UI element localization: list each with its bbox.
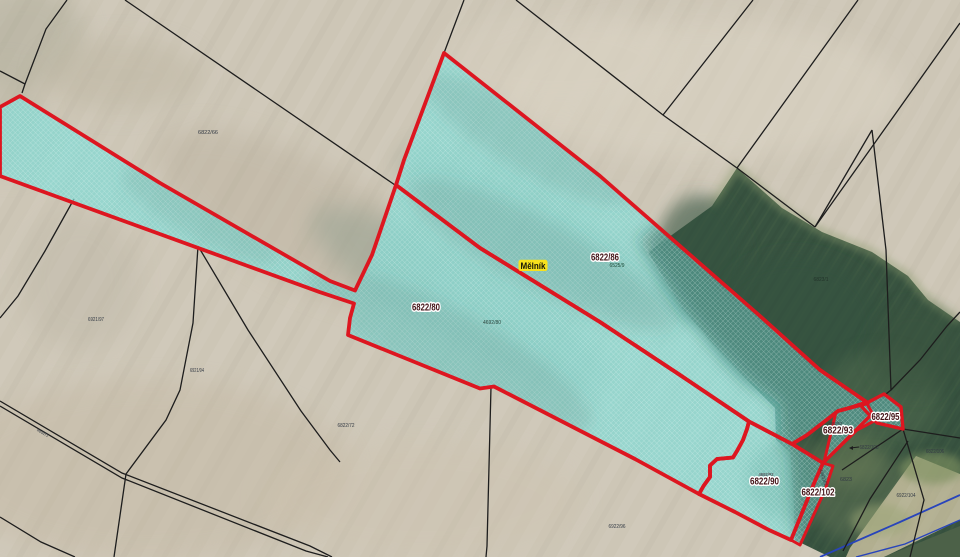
svg-text:6823/1: 6823/1	[814, 277, 829, 283]
svg-text:6822/80: 6822/80	[412, 303, 440, 314]
svg-text:6822/93: 6822/93	[823, 426, 853, 437]
svg-text:6822/95: 6822/95	[872, 412, 900, 423]
svg-text:6822/72: 6822/72	[338, 423, 355, 429]
svg-text:6922/104: 6922/104	[897, 493, 916, 499]
svg-text:Mělník: Mělník	[521, 261, 547, 272]
svg-text:6921/97: 6921/97	[88, 317, 104, 323]
svg-text:4692/80: 4692/80	[483, 320, 501, 326]
svg-text:6823: 6823	[840, 477, 852, 483]
svg-text:6822/90: 6822/90	[750, 477, 779, 488]
svg-text:6921/94: 6921/94	[190, 368, 204, 374]
svg-text:6822/106: 6822/106	[926, 449, 944, 455]
svg-text:6922/96: 6922/96	[609, 524, 626, 530]
svg-text:6822/102: 6822/102	[802, 488, 835, 499]
svg-text:6822/66: 6822/66	[198, 130, 218, 136]
svg-text:6525/9: 6525/9	[610, 263, 625, 269]
svg-text:6822/86: 6822/86	[591, 253, 619, 264]
svg-text:6822/103: 6822/103	[860, 445, 879, 451]
